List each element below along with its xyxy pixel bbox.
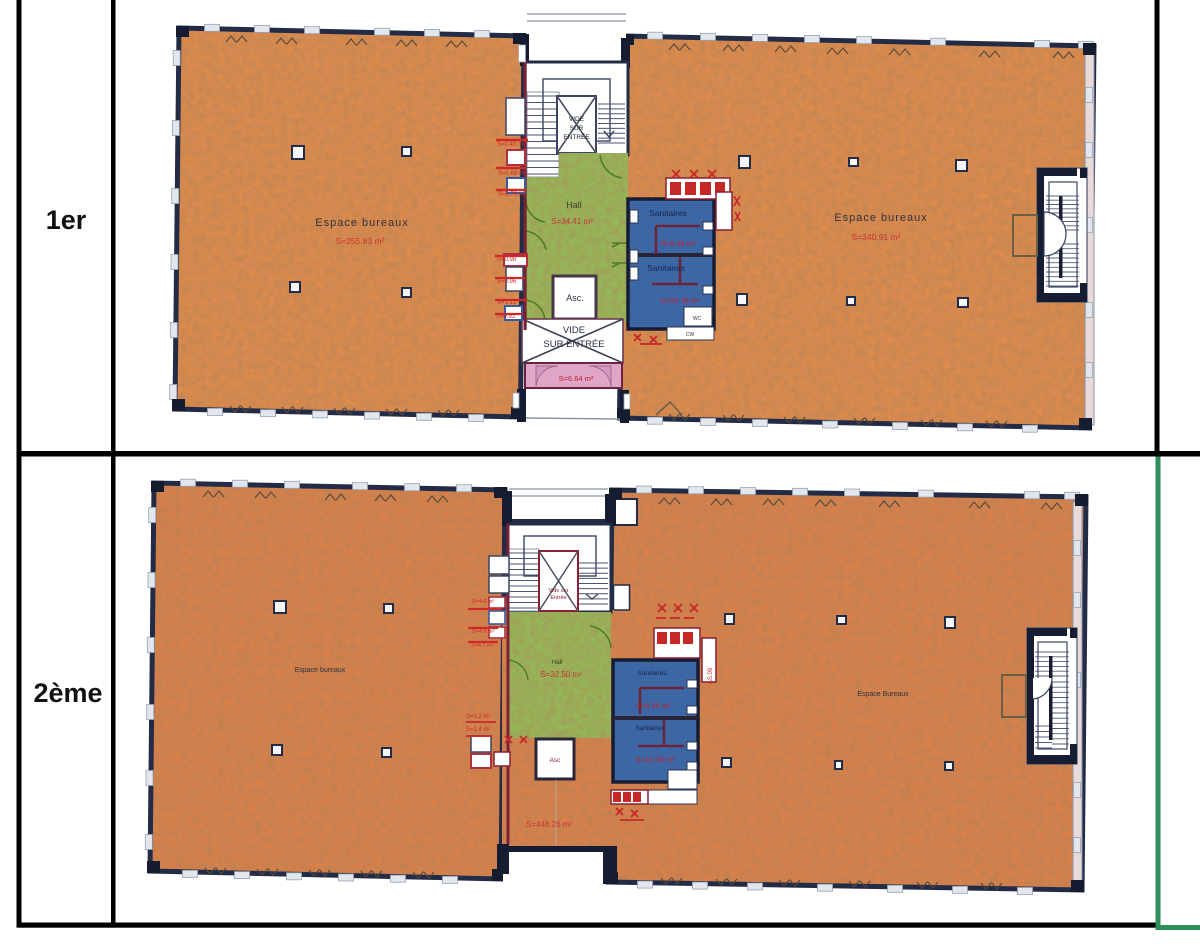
svg-text:Espace bureaux: Espace bureaux	[295, 667, 346, 674]
svg-text:S=448.26 m²: S=448.26 m²	[526, 820, 572, 829]
svg-text:SUR: SUR	[570, 125, 584, 132]
svg-text:S=4.9 m²: S=4.9 m²	[472, 629, 495, 635]
svg-text:WC: WC	[693, 316, 702, 322]
svg-text:ENTRÉE: ENTRÉE	[563, 132, 590, 141]
svg-text:S=0.98: S=0.98	[497, 257, 517, 263]
svg-text:Vide sur: Vide sur	[548, 588, 568, 594]
svg-text:S=0.76 m²: S=0.76 m²	[498, 192, 526, 198]
svg-text:Sanitaires: Sanitaires	[636, 725, 666, 732]
svg-text:CW: CW	[686, 332, 695, 338]
svg-text:S=32.50 m²: S=32.50 m²	[540, 670, 582, 679]
svg-text:S=0.48 m²: S=0.48 m²	[497, 142, 525, 148]
svg-text:S=34.41 m²: S=34.41 m²	[551, 217, 593, 226]
svg-text:Espace Bureaux: Espace Bureaux	[857, 691, 909, 698]
svg-text:S=4.7 m²: S=4.7 m²	[471, 643, 494, 649]
svg-text:Hall: Hall	[551, 659, 563, 666]
svg-text:Sanitaires: Sanitaires	[647, 263, 685, 273]
svg-text:S=9.36 m²: S=9.36 m²	[636, 701, 671, 710]
svg-text:SUR ENTRÉE: SUR ENTRÉE	[543, 339, 604, 350]
svg-text:VIDE: VIDE	[563, 325, 585, 336]
svg-text:VIDE: VIDE	[569, 116, 585, 123]
svg-text:S=6.64 m²: S=6.64 m²	[559, 374, 594, 383]
svg-text:Sanitaires: Sanitaires	[638, 670, 668, 677]
svg-text:S=10.78 m²: S=10.78 m²	[661, 296, 700, 305]
svg-text:2ème: 2ème	[33, 678, 102, 708]
svg-text:S=12.06 m²: S=12.06 m²	[636, 755, 675, 764]
svg-text:Hall: Hall	[566, 200, 582, 210]
svg-text:S=1.2 m²: S=1.2 m²	[466, 714, 491, 720]
svg-text:S=1.4 m²: S=1.4 m²	[466, 727, 491, 733]
svg-text:Sanitaires: Sanitaires	[649, 208, 687, 218]
svg-text:Espace bureaux: Espace bureaux	[315, 217, 409, 229]
svg-text:1er: 1er	[46, 205, 87, 235]
svg-text:Asc.: Asc.	[566, 293, 584, 303]
svg-text:S=0.69 m²: S=0.69 m²	[498, 171, 526, 177]
svg-text:S=255.83 m²: S=255.83 m²	[336, 236, 385, 246]
svg-text:Espace bureaux: Espace bureaux	[834, 212, 928, 224]
svg-text:S=0.96: S=0.96	[497, 279, 517, 285]
svg-text:S=340.91 m²: S=340.91 m²	[852, 232, 901, 242]
svg-text:S=9.49 m²: S=9.49 m²	[661, 239, 696, 248]
svg-text:S=4.6 m²: S=4.6 m²	[472, 599, 495, 605]
svg-text:Entrée: Entrée	[550, 595, 566, 601]
svg-text:AS.09: AS.09	[708, 667, 714, 684]
svg-text:Asc: Asc	[550, 757, 562, 764]
